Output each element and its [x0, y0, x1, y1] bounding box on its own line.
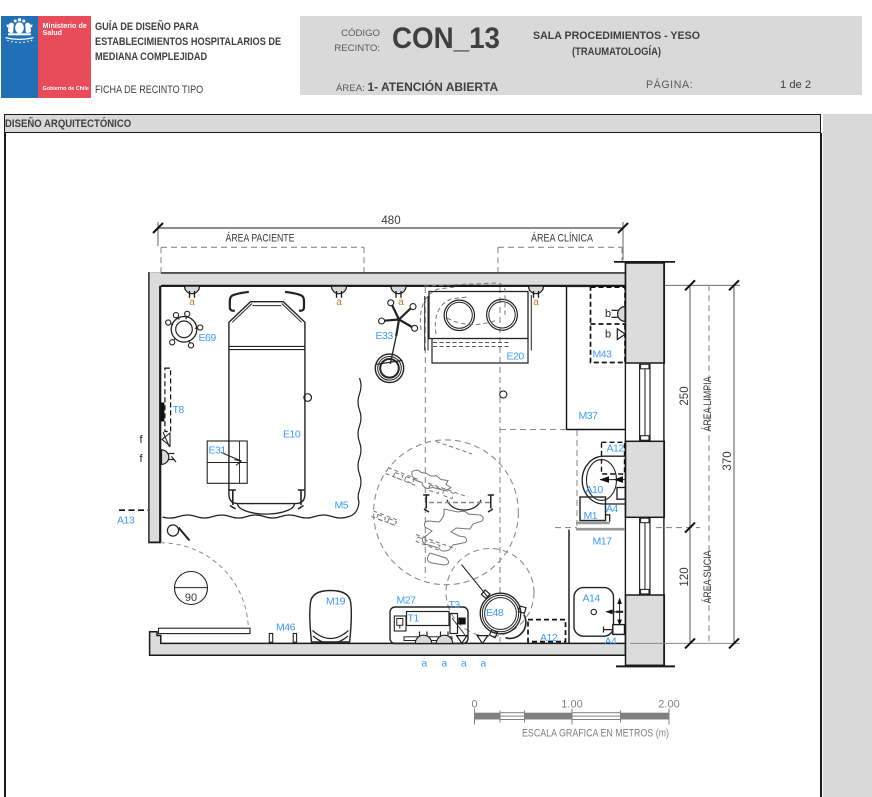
svg-text:A13: A13: [117, 515, 135, 527]
svg-text:M17: M17: [593, 536, 613, 548]
svg-text:b: b: [605, 308, 611, 320]
svg-text:E31: E31: [209, 445, 227, 457]
svg-text:A10: A10: [586, 484, 604, 496]
svg-text:0: 0: [471, 699, 477, 711]
svg-text:M46: M46: [276, 622, 296, 634]
svg-text:ÁREA LIMPIA: ÁREA LIMPIA: [701, 376, 714, 432]
svg-text:a: a: [480, 658, 486, 670]
svg-text:ESCALA GRAFICA EN METROS (m): ESCALA GRAFICA EN METROS (m): [522, 728, 669, 740]
svg-text:M27: M27: [397, 595, 417, 607]
svg-text:T1: T1: [408, 613, 420, 625]
svg-text:f: f: [140, 434, 144, 446]
svg-text:a: a: [533, 297, 539, 308]
svg-text:a: a: [189, 297, 195, 308]
svg-text:A14: A14: [583, 593, 601, 605]
svg-text:2.00: 2.00: [658, 699, 679, 711]
svg-text:a: a: [421, 658, 427, 670]
svg-text:a: a: [336, 297, 342, 308]
svg-text:A4: A4: [605, 636, 618, 648]
svg-text:90: 90: [185, 592, 197, 604]
svg-text:A12: A12: [607, 443, 625, 455]
svg-text:370: 370: [722, 451, 734, 470]
svg-text:480: 480: [381, 215, 400, 227]
svg-text:T3: T3: [449, 599, 461, 611]
svg-text:ÁREA CLÍNICA: ÁREA CLÍNICA: [531, 232, 594, 245]
svg-text:a: a: [441, 658, 447, 670]
svg-text:b: b: [605, 329, 611, 341]
svg-text:f: f: [140, 453, 144, 465]
svg-text:E69: E69: [199, 332, 217, 344]
svg-text:E10: E10: [283, 429, 301, 441]
svg-text:A12: A12: [540, 632, 558, 644]
svg-text:ÁREA PACIENTE: ÁREA PACIENTE: [226, 232, 295, 245]
svg-text:M5: M5: [335, 500, 349, 512]
svg-text:a: a: [461, 658, 467, 670]
svg-text:120: 120: [679, 567, 691, 586]
svg-text:M37: M37: [579, 410, 599, 422]
svg-text:250: 250: [679, 386, 691, 405]
svg-text:M19: M19: [326, 596, 346, 608]
svg-text:M1: M1: [584, 510, 598, 522]
svg-text:T8: T8: [173, 404, 185, 416]
svg-text:E20: E20: [507, 351, 525, 363]
svg-text:A4: A4: [606, 503, 619, 515]
svg-text:M43: M43: [593, 349, 613, 361]
svg-text:ÁREA SUCIA: ÁREA SUCIA: [701, 550, 714, 604]
svg-text:a: a: [398, 297, 404, 308]
svg-text:E48: E48: [486, 607, 504, 619]
svg-text:1.00: 1.00: [561, 699, 582, 711]
svg-text:E33: E33: [376, 330, 394, 342]
